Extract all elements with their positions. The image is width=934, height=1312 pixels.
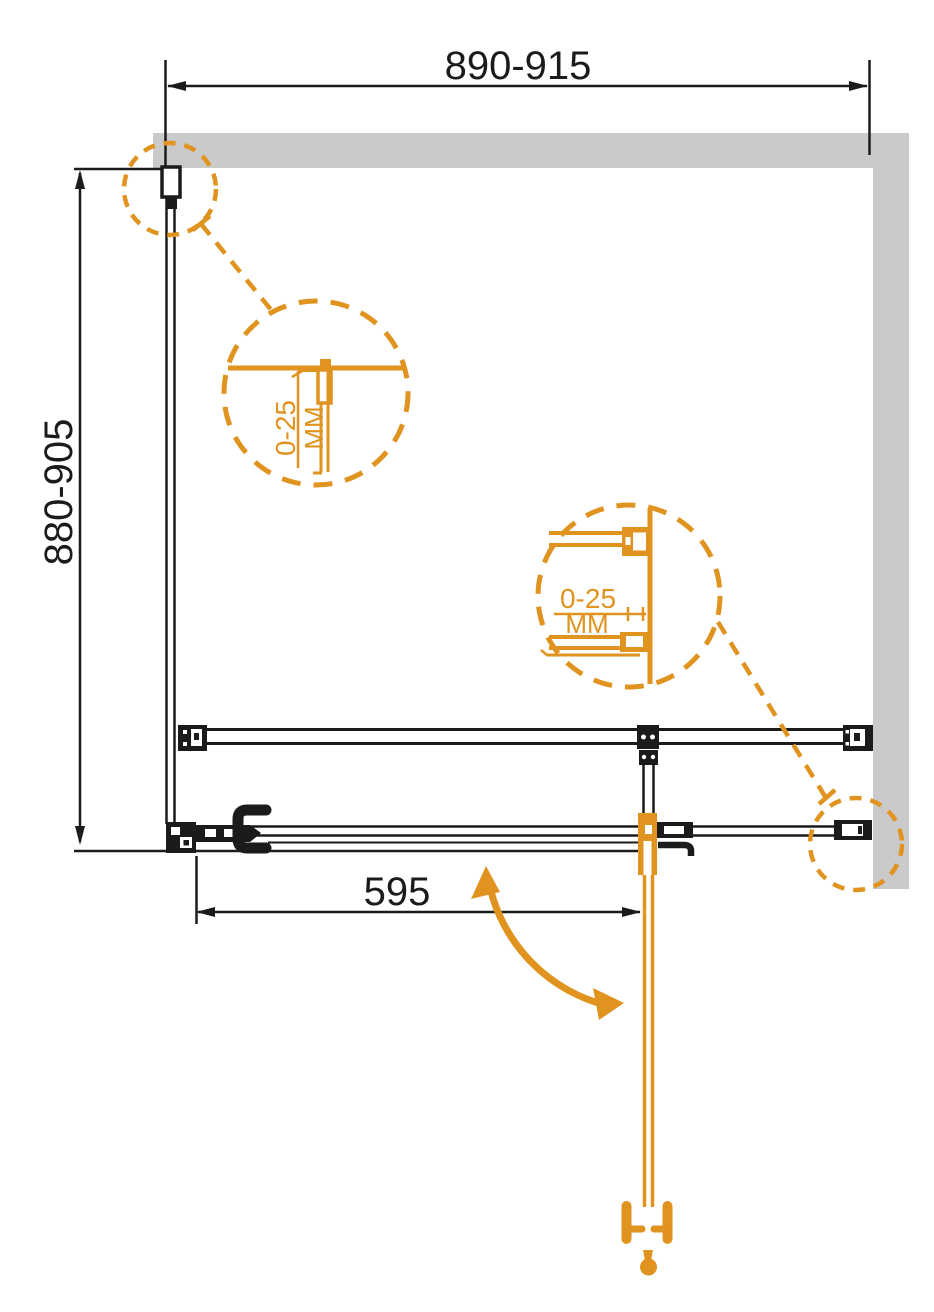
arrow-right-icon (622, 907, 641, 917)
fixed-panel-wall-bracket (834, 820, 872, 840)
detail-1-unit-label: MM (299, 406, 329, 449)
left-glass-panel (167, 170, 175, 824)
detail-zoom-circle-1 (224, 301, 408, 485)
door-open-position (471, 813, 668, 1276)
right-wall (873, 133, 909, 889)
arrow-left-icon (167, 81, 186, 91)
dimension-left (74, 169, 161, 845)
door-swing-arrow (471, 866, 624, 1020)
door-stop-bracket (657, 822, 693, 856)
dim-top-label: 890-915 (445, 44, 592, 88)
arrow-left-icon (196, 907, 215, 917)
walls (153, 133, 909, 889)
stabilizer-bracket-left (178, 725, 207, 751)
arrow-down-icon (75, 826, 85, 845)
arrow-right-icon (849, 81, 868, 91)
arrow-up-icon (75, 170, 85, 189)
detail-1-range-label: 0-25 (270, 400, 301, 456)
leader-line-2 (718, 622, 826, 798)
drawing-svg: 890-915 880-905 (0, 0, 934, 1312)
stabilizer-bracket-right (843, 725, 873, 751)
dim-left-label: 880-905 (37, 419, 81, 566)
wall-profile-top-left (162, 167, 180, 209)
door-bottom-cap (640, 1250, 657, 1276)
dim-door-label: 595 (364, 870, 431, 914)
technical-drawing: 890-915 880-905 (0, 0, 934, 1312)
leader-line-1 (201, 224, 272, 311)
door-handle-open-position (627, 1206, 668, 1239)
detail-2-unit-label: MM (565, 609, 608, 639)
stabilizer-bar (200, 730, 850, 744)
enclosure-structure (74, 167, 873, 856)
corner-bracket-bottom-left (166, 822, 196, 853)
swing-arrowhead-right-icon (593, 988, 624, 1020)
swing-arrowhead-up-icon (471, 866, 500, 899)
hinge-plate-left (196, 825, 261, 842)
pivot-bracket-center (637, 725, 659, 814)
top-wall (153, 133, 909, 168)
